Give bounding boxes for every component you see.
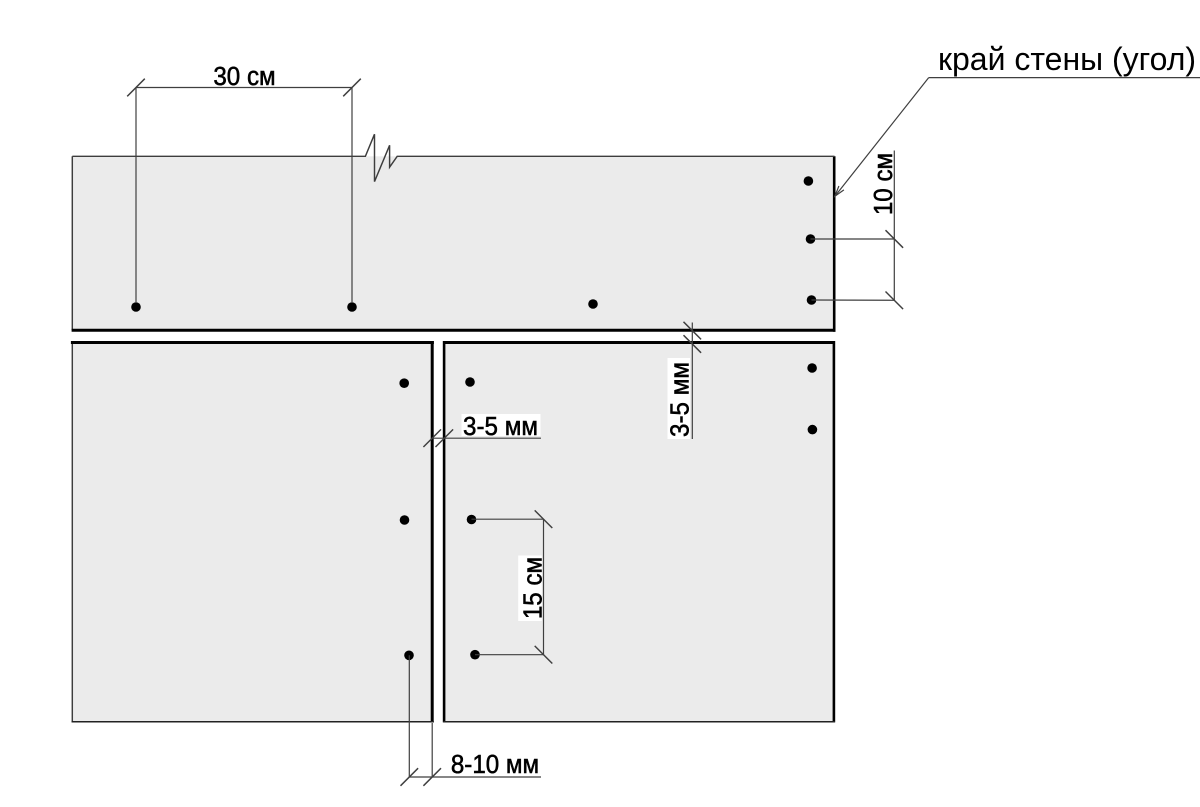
svg-text:10 см: 10 см bbox=[869, 153, 898, 215]
svg-text:3-5 мм: 3-5 мм bbox=[666, 362, 695, 437]
svg-text:край стены (угол): край стены (угол) bbox=[938, 41, 1196, 77]
svg-text:3-5 мм: 3-5 мм bbox=[463, 412, 538, 441]
svg-text:15 см: 15 см bbox=[519, 557, 548, 619]
svg-text:30 см: 30 см bbox=[213, 62, 275, 91]
svg-text:8-10 мм: 8-10 мм bbox=[451, 750, 539, 779]
